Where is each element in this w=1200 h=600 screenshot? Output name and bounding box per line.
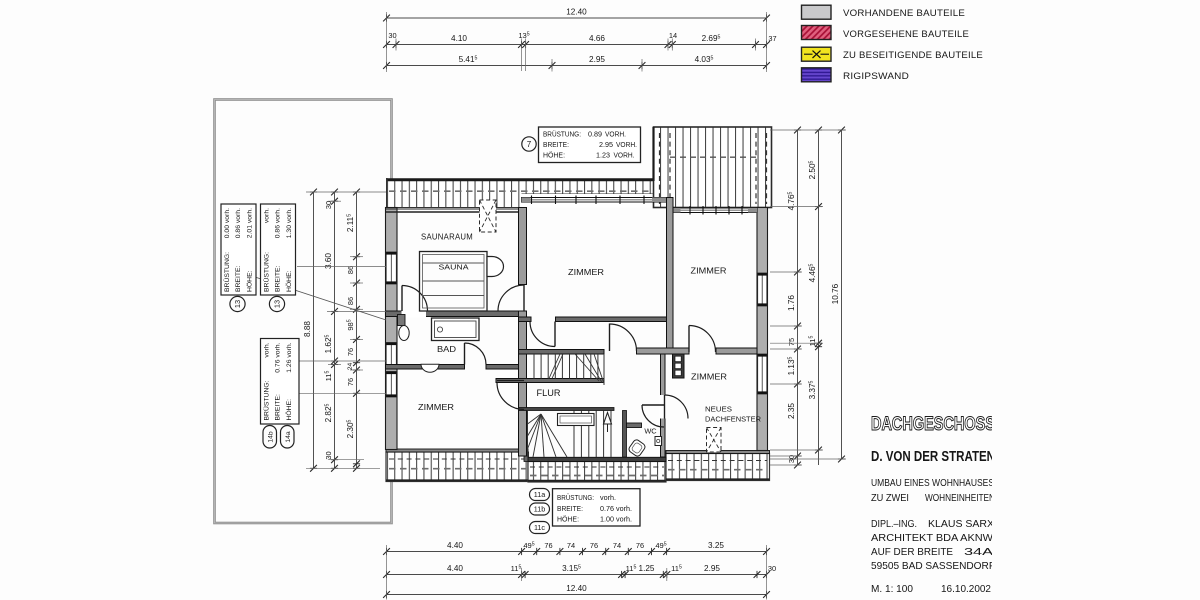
svg-text:86: 86: [346, 297, 355, 305]
svg-text:3.25: 3.25: [708, 541, 724, 550]
svg-text:VORGESEHENE BAUTEILE: VORGESEHENE BAUTEILE: [843, 29, 969, 39]
svg-text:ARCHITEKT BDA AKNW: ARCHITEKT BDA AKNW: [871, 533, 993, 544]
svg-text:1.25: 1.25: [639, 564, 655, 573]
svg-text:BRÜSTUNG:: BRÜSTUNG:: [543, 130, 581, 139]
svg-text:1.00 vorh.: 1.00 vorh.: [600, 515, 632, 524]
svg-text:M. 1: 100: M. 1: 100: [871, 584, 913, 595]
svg-text:AUF DER BREITE: AUF DER BREITE: [871, 547, 953, 558]
svg-text:14a: 14a: [285, 431, 292, 443]
svg-text:12.40: 12.40: [566, 584, 587, 593]
svg-text:vorh.: vorh.: [264, 208, 271, 223]
svg-text:11a: 11a: [534, 490, 545, 499]
svg-text:VORH.: VORH.: [616, 140, 637, 149]
svg-text:34A: 34A: [964, 547, 993, 558]
svg-text:BREITE:: BREITE:: [275, 394, 282, 421]
svg-text:ZIMMER: ZIMMER: [691, 372, 727, 382]
svg-text:2.95: 2.95: [704, 564, 720, 573]
svg-text:2.35: 2.35: [787, 403, 796, 419]
svg-text:D. VON DER STRATEN: D. VON DER STRATEN: [871, 449, 995, 465]
svg-text:76: 76: [544, 541, 552, 550]
svg-text:SAUNA: SAUNA: [439, 263, 469, 272]
svg-text:ZIMMER: ZIMMER: [691, 266, 727, 276]
svg-text:2.95: 2.95: [599, 140, 613, 149]
svg-text:10.76: 10.76: [831, 283, 840, 304]
svg-text:74: 74: [567, 541, 575, 550]
svg-text:2.95: 2.95: [589, 55, 605, 64]
svg-text:0.86 vorh.: 0.86 vorh.: [275, 208, 282, 238]
svg-text:12.40: 12.40: [566, 8, 587, 17]
svg-text:VORH.: VORH.: [605, 130, 626, 139]
svg-text:76: 76: [636, 541, 644, 550]
svg-text:BREITE:: BREITE:: [235, 265, 242, 292]
svg-text:2.01 vorh.: 2.01 vorh.: [246, 208, 253, 238]
svg-text:30: 30: [324, 451, 333, 459]
svg-text:BREITE:: BREITE:: [557, 504, 583, 513]
svg-text:30: 30: [324, 201, 333, 209]
svg-text:4.40: 4.40: [447, 564, 463, 573]
svg-text:1.30 vorh.: 1.30 vorh.: [286, 208, 293, 238]
svg-text:16.10.2002: 16.10.2002: [941, 584, 991, 595]
svg-text:WOHNEINHEITEN: WOHNEINHEITEN: [925, 493, 995, 504]
svg-text:BREITE:: BREITE:: [275, 265, 282, 292]
svg-text:BRÜSTUNG:: BRÜSTUNG:: [223, 252, 231, 292]
svg-text:DIPL.–ING.: DIPL.–ING.: [871, 519, 917, 530]
svg-text:13: 13: [273, 300, 282, 308]
svg-text:24: 24: [347, 363, 354, 371]
svg-text:BREITE:: BREITE:: [543, 140, 569, 149]
svg-text:ZU BESEITIGENDE BAUTEILE: ZU BESEITIGENDE BAUTEILE: [843, 50, 983, 60]
svg-text:BRÜSTUNG:: BRÜSTUNG:: [557, 493, 594, 502]
svg-text:HÖHE:: HÖHE:: [245, 270, 253, 292]
svg-text:KLAUS SARX: KLAUS SARX: [928, 519, 994, 530]
svg-text:30: 30: [768, 564, 776, 573]
svg-text:HÖHE:: HÖHE:: [285, 399, 293, 421]
svg-text:75: 75: [787, 338, 796, 346]
svg-text:30: 30: [388, 31, 396, 40]
svg-text:FLUR: FLUR: [537, 388, 561, 398]
svg-text:HÖHE:: HÖHE:: [557, 515, 579, 524]
svg-text:UMBAU EINES WOHNHAUSES: UMBAU EINES WOHNHAUSES: [871, 478, 994, 489]
svg-text:11b: 11b: [534, 505, 545, 514]
svg-text:7: 7: [527, 140, 532, 149]
svg-text:vorh.: vorh.: [600, 493, 616, 502]
svg-text:NEUES: NEUES: [705, 405, 732, 414]
svg-text:BRÜSTUNG:: BRÜSTUNG:: [263, 380, 271, 420]
svg-text:vorh.: vorh.: [264, 342, 271, 357]
svg-text:4.10: 4.10: [451, 34, 467, 43]
svg-text:4.40: 4.40: [447, 541, 463, 550]
svg-text:0.86 vorh.: 0.86 vorh.: [235, 208, 242, 238]
svg-text:76: 76: [346, 348, 355, 356]
svg-text:HÖHE:: HÖHE:: [285, 270, 293, 292]
svg-text:0.89: 0.89: [588, 130, 602, 139]
svg-text:76: 76: [590, 541, 598, 550]
svg-text:VORHANDENE BAUTEILE: VORHANDENE BAUTEILE: [843, 8, 965, 18]
svg-text:WC: WC: [644, 427, 657, 436]
svg-text:1.76: 1.76: [787, 295, 796, 311]
svg-text:VORH.: VORH.: [614, 151, 635, 160]
svg-text:DACHGESCHOSS: DACHGESCHOSS: [871, 414, 995, 435]
svg-text:0.76 vorh.: 0.76 vorh.: [600, 504, 632, 513]
svg-text:DACHFENSTER: DACHFENSTER: [705, 415, 761, 424]
svg-text:13: 13: [233, 300, 242, 308]
svg-text:86: 86: [346, 266, 355, 274]
svg-text:ZIMMER: ZIMMER: [418, 402, 454, 412]
svg-text:14b: 14b: [268, 431, 275, 443]
svg-text:1.26 vorh.: 1.26 vorh.: [286, 342, 293, 372]
svg-text:0.76 vorh.: 0.76 vorh.: [275, 342, 282, 372]
svg-text:4.66: 4.66: [589, 34, 605, 43]
svg-text:RIGIPSWAND: RIGIPSWAND: [843, 71, 909, 81]
svg-text:ZIMMER: ZIMMER: [568, 267, 604, 277]
svg-text:76: 76: [346, 378, 355, 386]
svg-text:14: 14: [669, 31, 677, 40]
svg-text:59505 BAD SASSENDORF: 59505 BAD SASSENDORF: [871, 561, 995, 572]
svg-text:HÖHE:: HÖHE:: [543, 151, 565, 160]
svg-text:0.00 vorh.: 0.00 vorh.: [224, 208, 231, 238]
svg-text:1.23: 1.23: [596, 151, 610, 160]
svg-text:BAD: BAD: [437, 344, 456, 354]
svg-text:ZU ZWEI: ZU ZWEI: [871, 493, 909, 504]
svg-text:37: 37: [768, 34, 776, 43]
svg-text:11c: 11c: [534, 523, 545, 532]
svg-text:74: 74: [613, 541, 621, 550]
svg-text:8.88: 8.88: [303, 321, 312, 337]
svg-text:BRÜSTUNG:: BRÜSTUNG:: [263, 252, 271, 292]
svg-text:SAUNARAUM: SAUNARAUM: [421, 232, 473, 242]
